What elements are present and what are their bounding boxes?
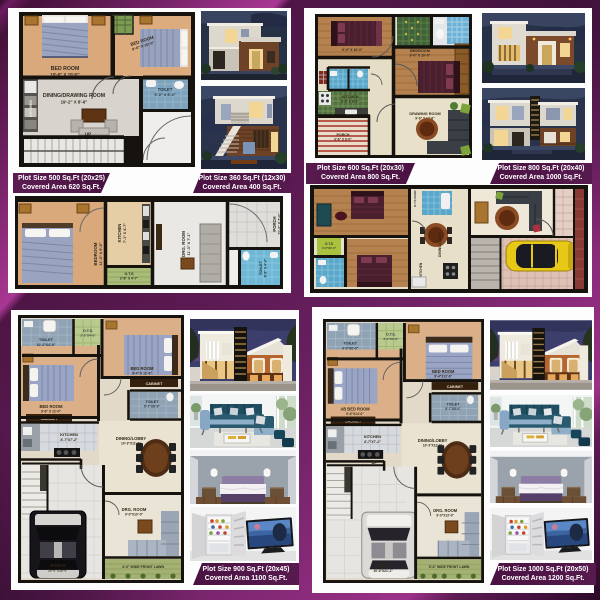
svg-text:9'-0"X10'-0": 9'-0"X10'-0" bbox=[125, 513, 144, 517]
svg-text:KITCHEN: KITCHEN bbox=[364, 434, 381, 439]
svg-text:CABINET: CABINET bbox=[146, 382, 164, 386]
svg-text:DINING/LOBBY: DINING/LOBBY bbox=[116, 436, 147, 441]
svg-text:3'-2"X4'-0": 3'-2"X4'-0" bbox=[383, 337, 398, 341]
svg-text:PORCH: PORCH bbox=[272, 216, 277, 231]
svg-text:BED ROOM: BED ROOM bbox=[432, 369, 455, 374]
svg-text:DRG. ROOM: DRG. ROOM bbox=[181, 231, 186, 257]
svg-text:BED ROOM: BED ROOM bbox=[130, 366, 154, 371]
svg-text:5'-7"X5'-0": 5'-7"X5'-0" bbox=[445, 407, 461, 411]
svg-text:9'-4" X 11'-6": 9'-4" X 11'-6" bbox=[132, 371, 152, 375]
svg-text:3'-2"X4'-0": 3'-2"X4'-0" bbox=[80, 334, 96, 338]
svg-text:19'-2" X 8'-6": 19'-2" X 8'-6" bbox=[61, 100, 88, 105]
svg-text:TOILET: TOILET bbox=[258, 260, 263, 275]
svg-text:DINING/LOBBY: DINING/LOBBY bbox=[418, 438, 448, 443]
svg-text:PORCH: PORCH bbox=[50, 563, 65, 568]
svg-text:TOILET: TOILET bbox=[343, 341, 357, 346]
svg-text:11'-3" X 9'-5": 11'-3" X 9'-5" bbox=[99, 242, 103, 265]
svg-text:TOILET: TOILET bbox=[158, 87, 173, 92]
svg-text:DINING/LOBBY: DINING/LOBBY bbox=[438, 232, 442, 257]
svg-text:BEDROOM: BEDROOM bbox=[93, 242, 98, 265]
svg-text:KITCHEN: KITCHEN bbox=[342, 95, 359, 99]
svg-text:11'-3" X 7'-1": 11'-3" X 7'-1" bbox=[187, 232, 191, 255]
svg-text:2'-6" X 4'-7": 2'-6" X 4'-7" bbox=[120, 277, 139, 281]
svg-text:9'-0" X 10'-0": 9'-0" X 10'-0" bbox=[342, 48, 363, 52]
svg-text:KITCHEN: KITCHEN bbox=[419, 262, 423, 277]
svg-text:PORCH: PORCH bbox=[376, 563, 391, 568]
svg-text:9'-6" X 12'-0": 9'-6" X 12'-0" bbox=[41, 409, 62, 413]
svg-text:8'-7"X7'-2": 8'-7"X7'-2" bbox=[364, 440, 381, 444]
svg-text:5'-0" WIDE FRONT LAWN: 5'-0" WIDE FRONT LAWN bbox=[429, 565, 470, 569]
svg-text:UP: UP bbox=[371, 460, 377, 465]
svg-text:5'-0" X 5'-0": 5'-0" X 5'-0" bbox=[154, 93, 175, 97]
svg-text:10'-0"X16'-0": 10'-0"X16'-0" bbox=[48, 569, 69, 573]
svg-text:DINING/DRAWING ROOM: DINING/DRAWING ROOM bbox=[43, 93, 105, 99]
svg-text:AB BED ROOM: AB BED ROOM bbox=[340, 407, 370, 412]
svg-text:TOILET: TOILET bbox=[39, 337, 54, 342]
svg-text:O.T.S.: O.T.S. bbox=[83, 329, 93, 333]
svg-text:BED ROOM: BED ROOM bbox=[39, 404, 63, 409]
svg-text:6'-6" X 4'-0": 6'-6" X 4'-0" bbox=[264, 258, 268, 277]
svg-text:DRAWING ROOM: DRAWING ROOM bbox=[409, 112, 440, 116]
svg-text:8'-7"X7'-2": 8'-7"X7'-2" bbox=[61, 438, 78, 442]
svg-text:9'-6" X 6'-0": 9'-6" X 6'-0" bbox=[334, 137, 352, 141]
svg-text:10'-0"X21'-1": 10'-0"X21'-1" bbox=[373, 569, 393, 573]
svg-text:O.T.S.: O.T.S. bbox=[386, 333, 396, 337]
svg-text:5'-7"X5'-0": 5'-7"X5'-0" bbox=[144, 404, 160, 408]
svg-text:KITCHEN: KITCHEN bbox=[60, 432, 78, 437]
svg-text:DRG. ROOM: DRG. ROOM bbox=[122, 507, 147, 512]
svg-text:UP: UP bbox=[85, 132, 91, 137]
svg-text:DRG. ROOM: DRG. ROOM bbox=[433, 508, 458, 513]
svg-text:11'-3" X 7'-0": 11'-3" X 7'-0" bbox=[278, 213, 282, 235]
svg-text:O.T.S: O.T.S bbox=[125, 272, 135, 276]
svg-text:4'-0" WIDE FRONT LAWN: 4'-0" WIDE FRONT LAWN bbox=[122, 565, 164, 569]
svg-text:7'-1" X 4'-7": 7'-1" X 4'-7" bbox=[123, 223, 127, 243]
svg-text:9'-4"X12'-6": 9'-4"X12'-6" bbox=[434, 374, 452, 378]
svg-text:KITCHEN: KITCHEN bbox=[29, 100, 33, 117]
svg-text:TOILET: TOILET bbox=[145, 400, 159, 404]
svg-text:10'-0" X 10'-0": 10'-0" X 10'-0" bbox=[50, 72, 79, 77]
svg-text:BEDROOM: BEDROOM bbox=[410, 49, 430, 53]
svg-text:KITCHEN: KITCHEN bbox=[117, 224, 122, 243]
svg-text:CABINET: CABINET bbox=[447, 385, 464, 389]
svg-text:9'-6"X14'-0": 9'-6"X14'-0" bbox=[346, 412, 364, 416]
svg-text:9'-0"X13'-0": 9'-0"X13'-0" bbox=[436, 514, 454, 518]
svg-text:8'-0" X 8'-0": 8'-0" X 8'-0" bbox=[341, 99, 359, 103]
svg-text:PORCH: PORCH bbox=[337, 133, 350, 137]
svg-text:O.T.S ROOF: O.T.S ROOF bbox=[413, 190, 417, 207]
svg-text:9'-0" X 10'-0": 9'-0" X 10'-0" bbox=[410, 53, 431, 57]
svg-text:3'-0"X4'-0": 3'-0"X4'-0" bbox=[322, 246, 337, 250]
